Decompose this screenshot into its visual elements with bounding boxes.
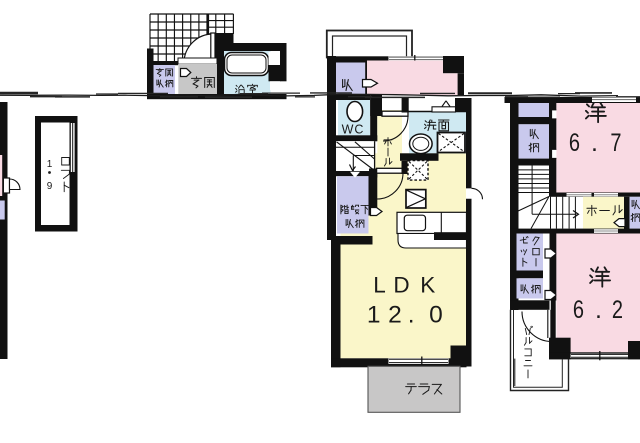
svg-text:.: .: [595, 296, 602, 324]
svg-text:9: 9: [47, 181, 53, 192]
svg-text:D: D: [393, 272, 409, 297]
svg-text:2: 2: [388, 302, 402, 329]
svg-text:WC: WC: [342, 123, 365, 137]
svg-text:.: .: [591, 129, 598, 157]
svg-text:K: K: [420, 272, 435, 297]
svg-text:0: 0: [429, 302, 443, 329]
svg-text:.: .: [408, 302, 415, 329]
svg-text:7: 7: [610, 129, 621, 157]
svg-text:1: 1: [47, 159, 53, 170]
svg-text:6: 6: [569, 129, 580, 157]
svg-text:L: L: [373, 272, 386, 297]
svg-text:1: 1: [367, 302, 381, 329]
svg-text:2: 2: [612, 296, 623, 324]
svg-text:6: 6: [573, 296, 584, 324]
